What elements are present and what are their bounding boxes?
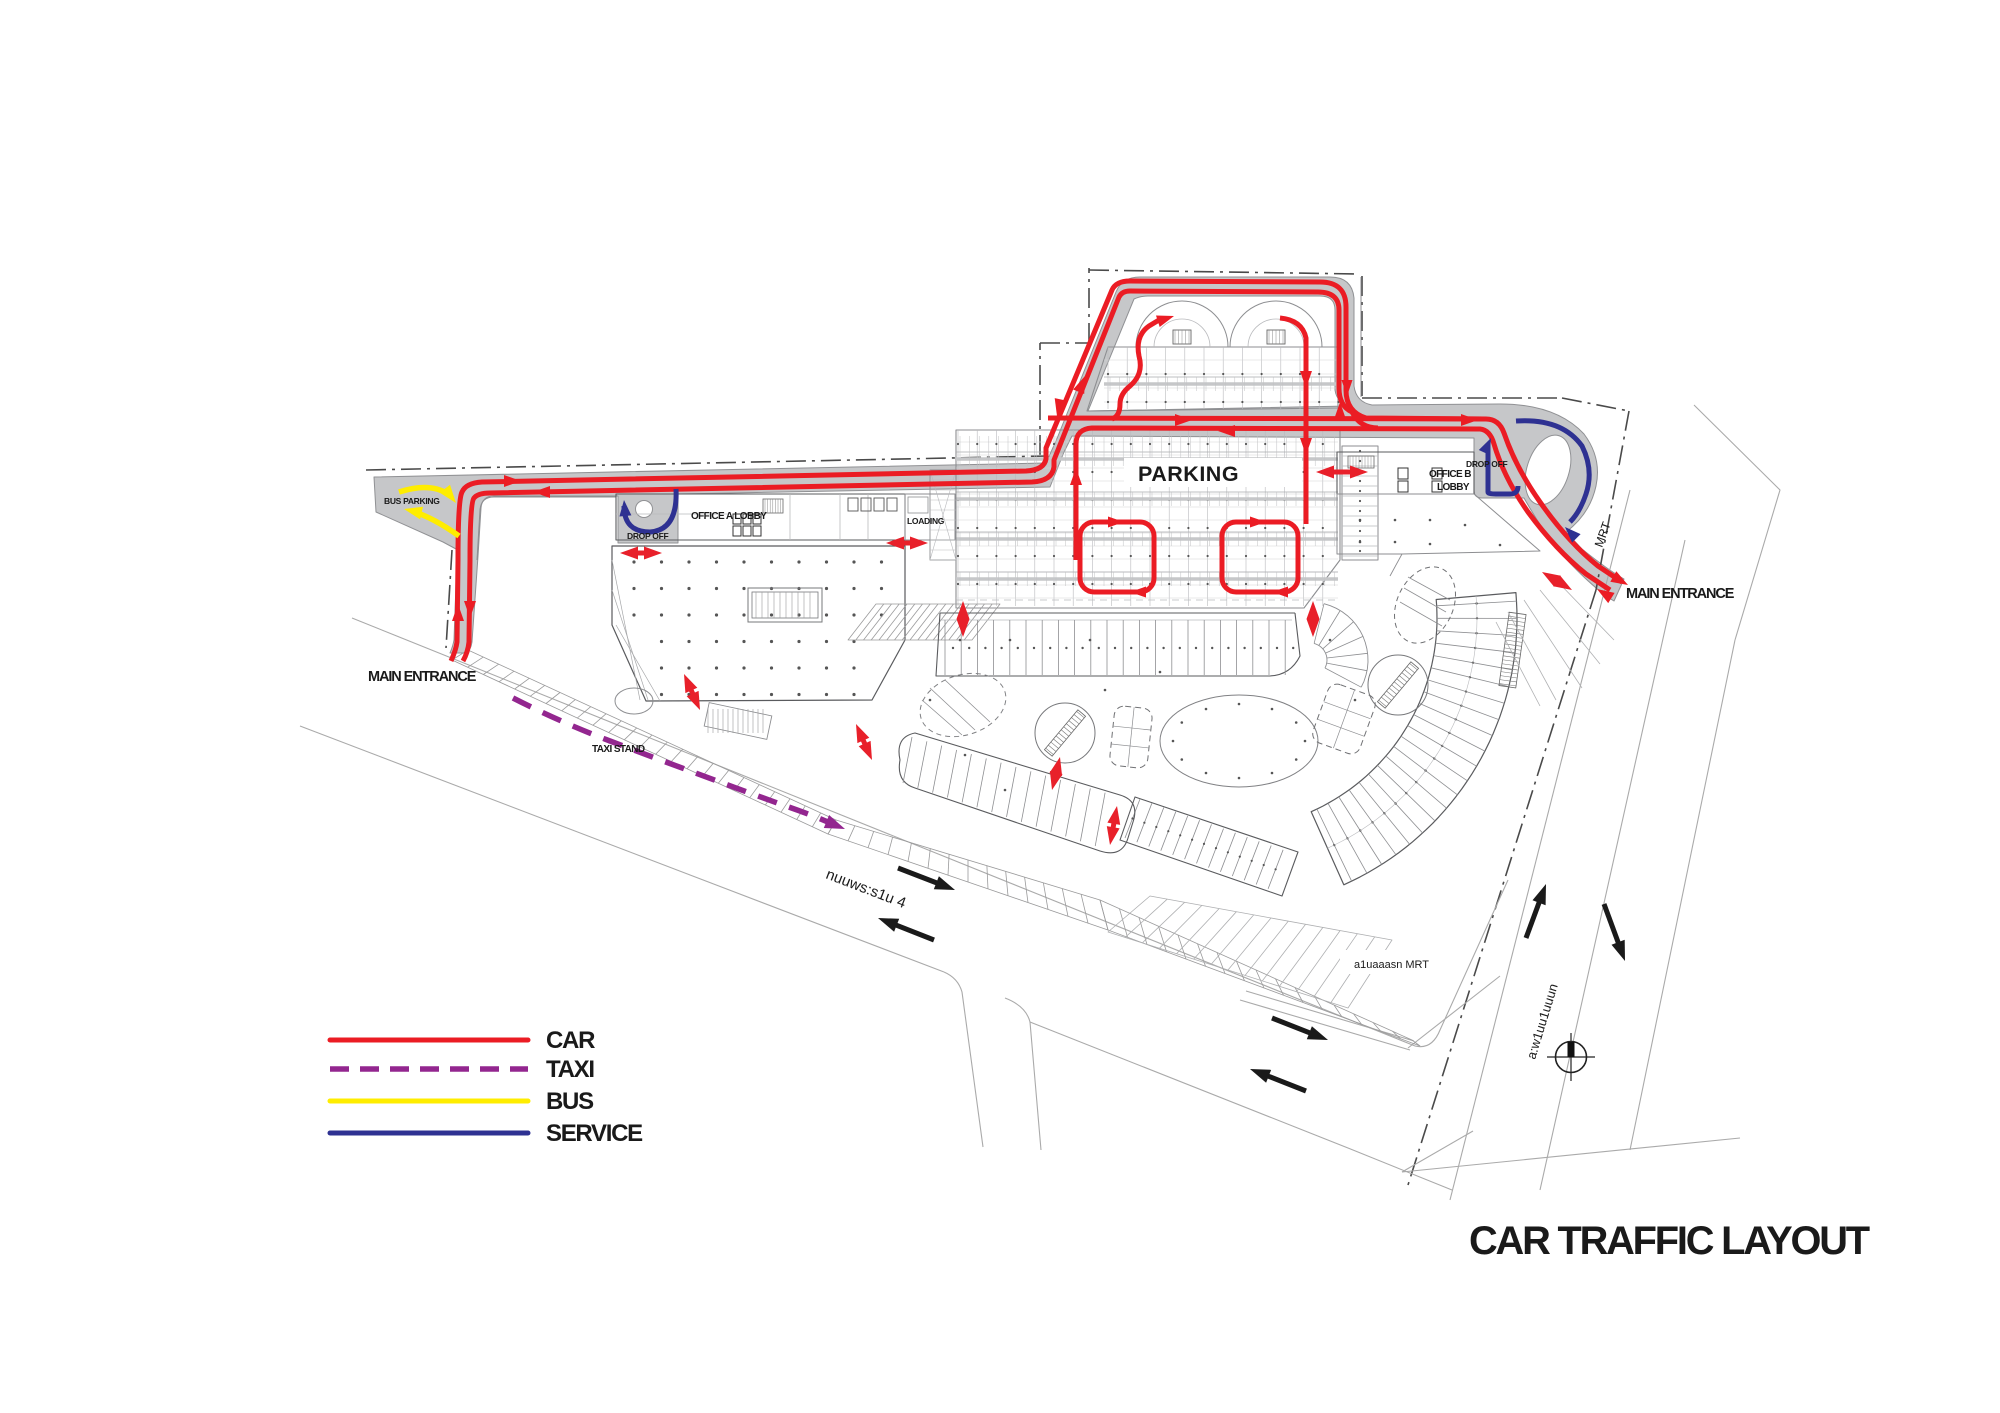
svg-text:CAR TRAFFIC LAYOUT: CAR TRAFFIC LAYOUT xyxy=(1469,1219,1870,1263)
svg-text:DROP OFF: DROP OFF xyxy=(1466,459,1507,469)
svg-text:OFFICE B: OFFICE B xyxy=(1429,469,1471,480)
svg-text:TAXI: TAXI xyxy=(546,1056,594,1083)
svg-text:a1uaaasn MRT: a1uaaasn MRT xyxy=(1354,959,1429,971)
svg-text:PARKING: PARKING xyxy=(1138,462,1239,486)
svg-text:MAIN ENTRANCE: MAIN ENTRANCE xyxy=(368,669,477,685)
svg-text:CAR: CAR xyxy=(546,1027,595,1054)
svg-text:DROP OFF: DROP OFF xyxy=(627,531,668,541)
svg-text:SERVICE: SERVICE xyxy=(546,1120,643,1147)
svg-text:LOBBY: LOBBY xyxy=(1437,482,1470,493)
svg-text:MAIN ENTRANCE: MAIN ENTRANCE xyxy=(1626,586,1735,602)
svg-text:LOADING: LOADING xyxy=(907,516,945,526)
svg-text:TAXI STAND: TAXI STAND xyxy=(592,744,645,755)
svg-text:OFFICE A LOBBY: OFFICE A LOBBY xyxy=(691,511,767,522)
svg-text:BUS PARKING: BUS PARKING xyxy=(384,496,440,506)
svg-text:BUS: BUS xyxy=(546,1088,594,1115)
